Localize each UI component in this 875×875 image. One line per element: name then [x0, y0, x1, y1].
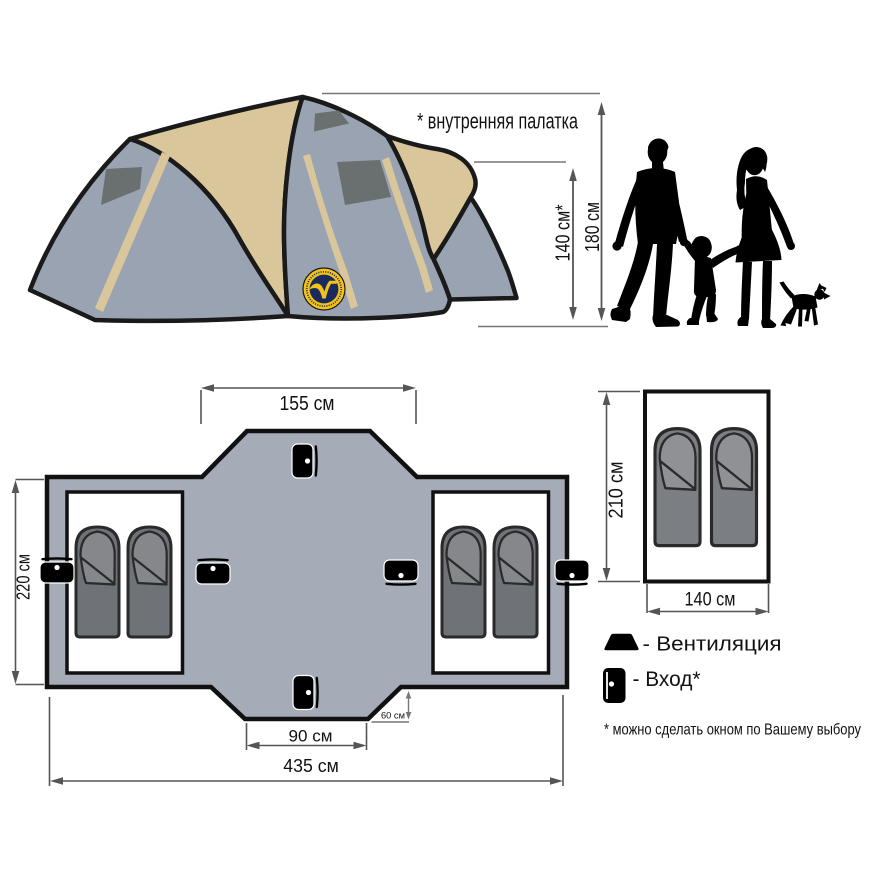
svg-text:180 см: 180 см: [582, 202, 604, 252]
svg-text:140 см*: 140 см*: [552, 204, 575, 261]
svg-text:155 см: 155 см: [280, 393, 335, 415]
svg-text:* внутренняя палатка: * внутренняя палатка: [417, 109, 579, 134]
svg-text:- Вход*: - Вход*: [633, 668, 701, 691]
svg-text:210 см: 210 см: [606, 462, 628, 519]
svg-text:60 см: 60 см: [381, 711, 405, 722]
svg-text:90 см: 90 см: [289, 727, 333, 746]
svg-text:140 см: 140 см: [685, 589, 736, 611]
svg-text:- Вентиляция: - Вентиляция: [643, 633, 782, 656]
svg-text:220 см: 220 см: [14, 554, 34, 600]
svg-text:435 см: 435 см: [283, 755, 339, 776]
svg-text:* можно сделать окном по Вашем: * можно сделать окном по Вашему выбору: [604, 722, 861, 739]
